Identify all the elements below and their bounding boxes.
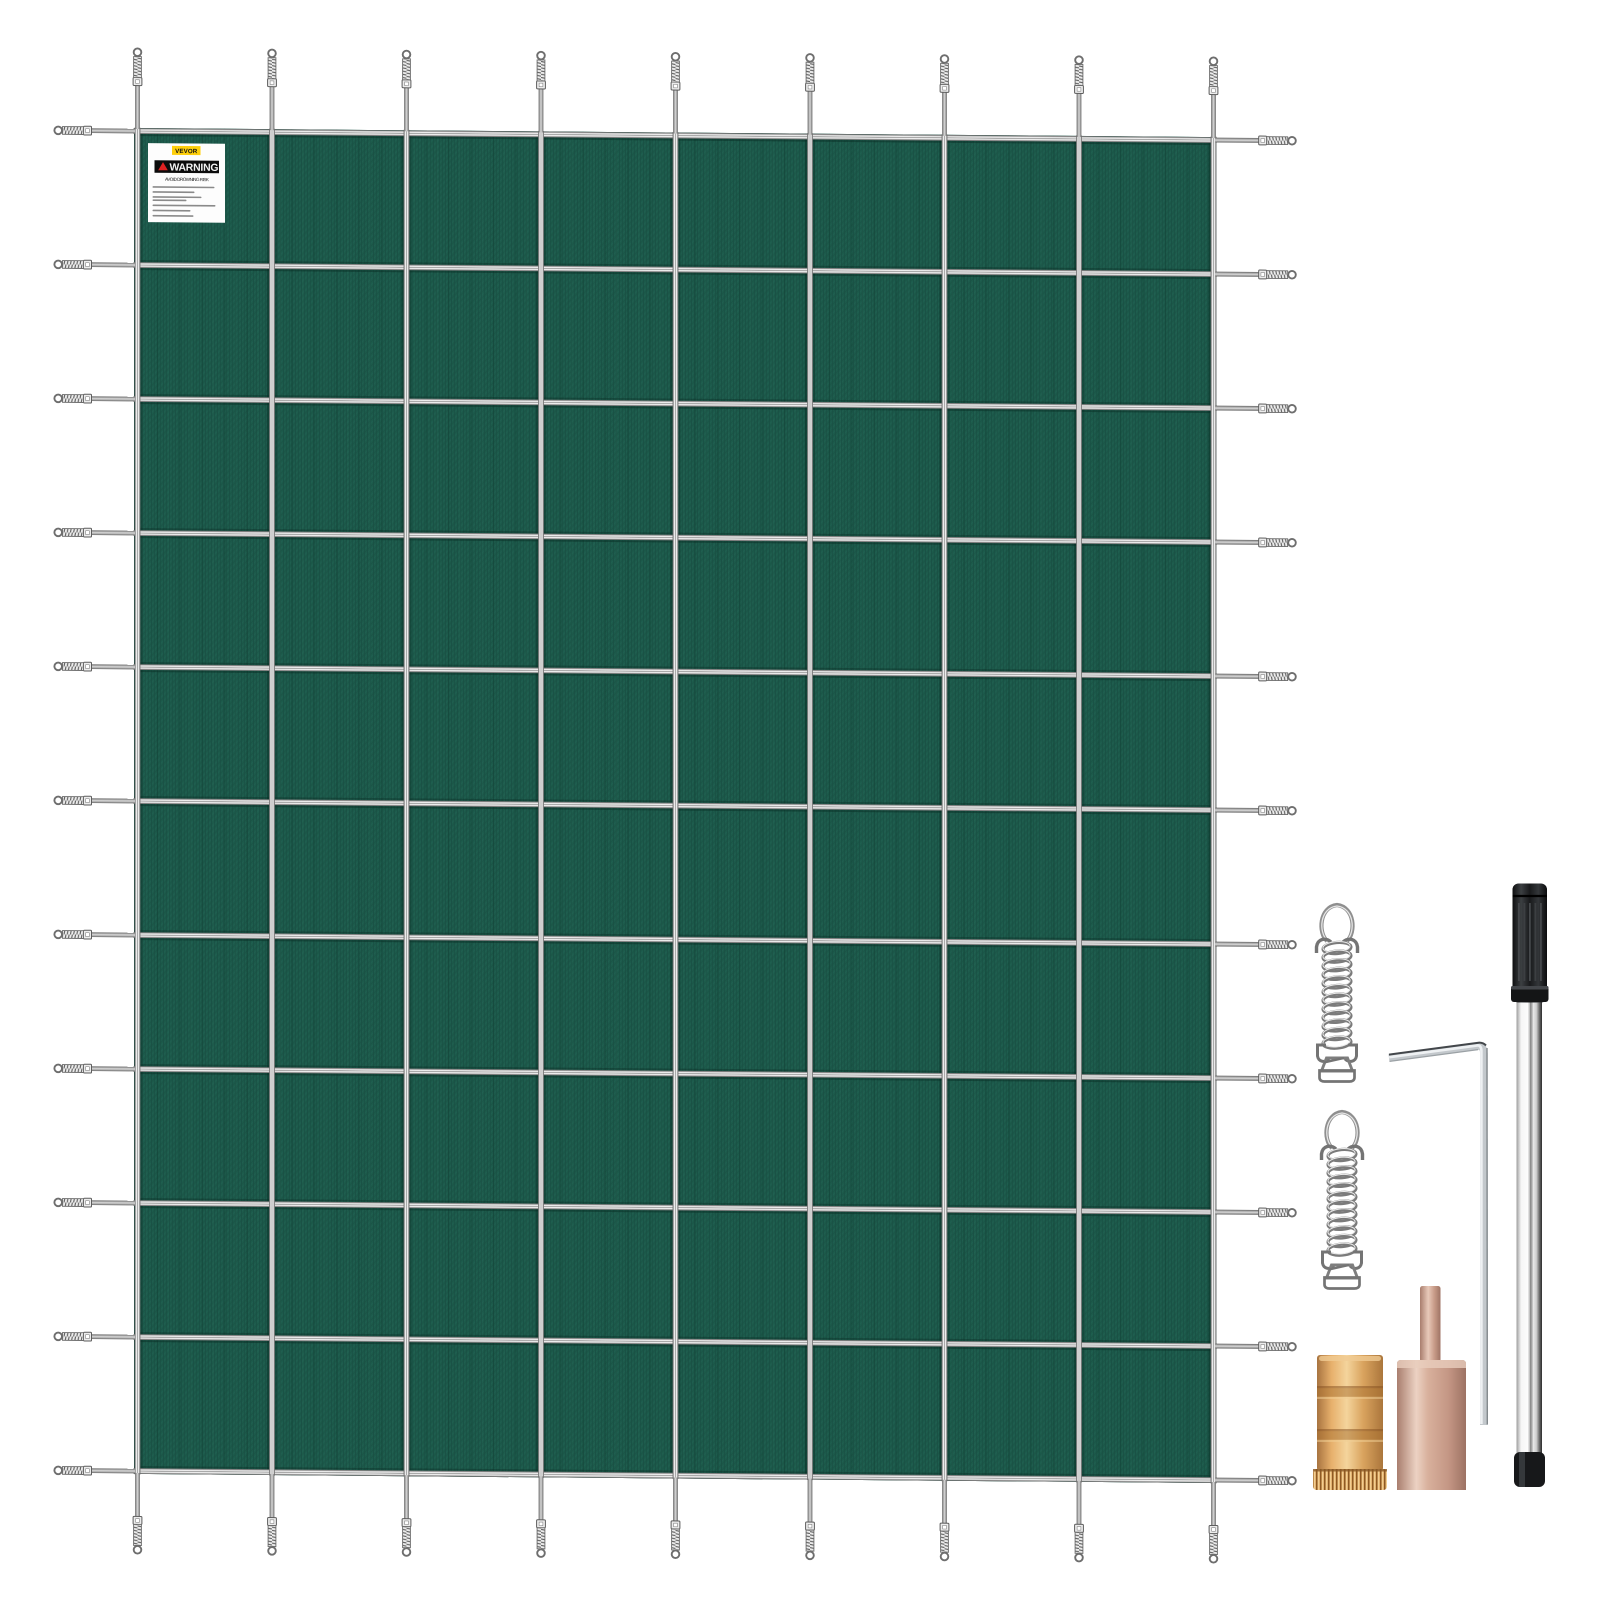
- svg-text:WARNING: WARNING: [170, 163, 219, 174]
- svg-text:VEVOR: VEVOR: [175, 148, 198, 155]
- svg-text:AVOID DROWNING RISK: AVOID DROWNING RISK: [165, 177, 210, 182]
